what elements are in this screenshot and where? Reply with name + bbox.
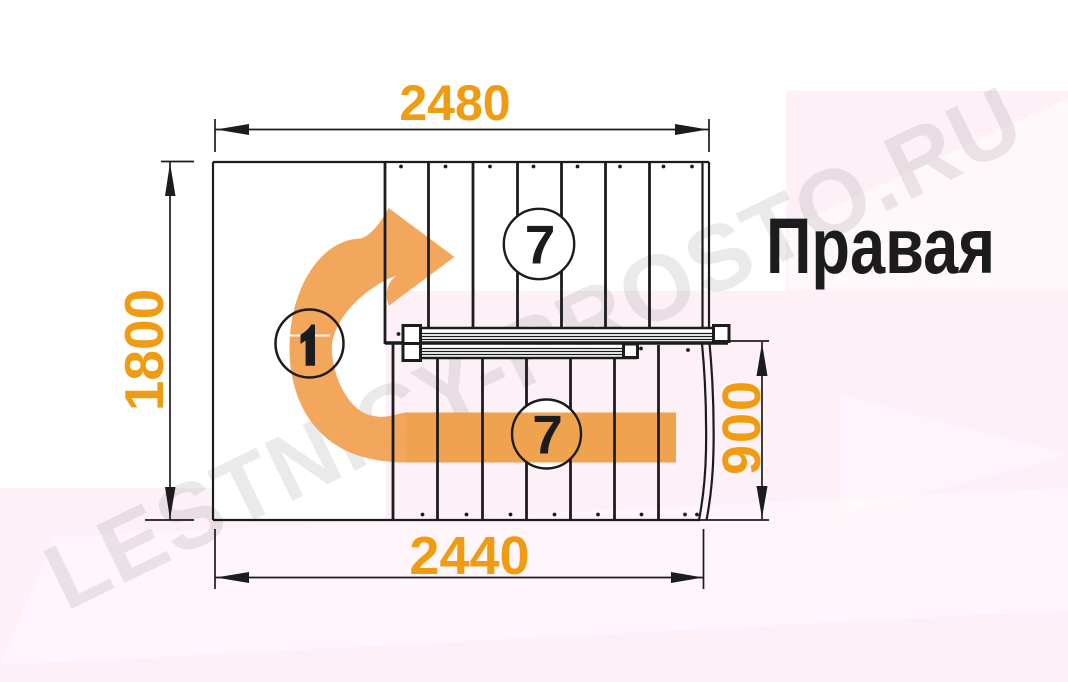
svg-text:2480: 2480 bbox=[399, 75, 510, 131]
svg-text:7: 7 bbox=[532, 404, 563, 466]
svg-text:7: 7 bbox=[525, 214, 556, 276]
svg-text:1800: 1800 bbox=[113, 289, 175, 411]
svg-text:900: 900 bbox=[712, 379, 772, 475]
svg-text:Правая: Правая bbox=[766, 202, 995, 290]
svg-text:2440: 2440 bbox=[409, 526, 529, 586]
